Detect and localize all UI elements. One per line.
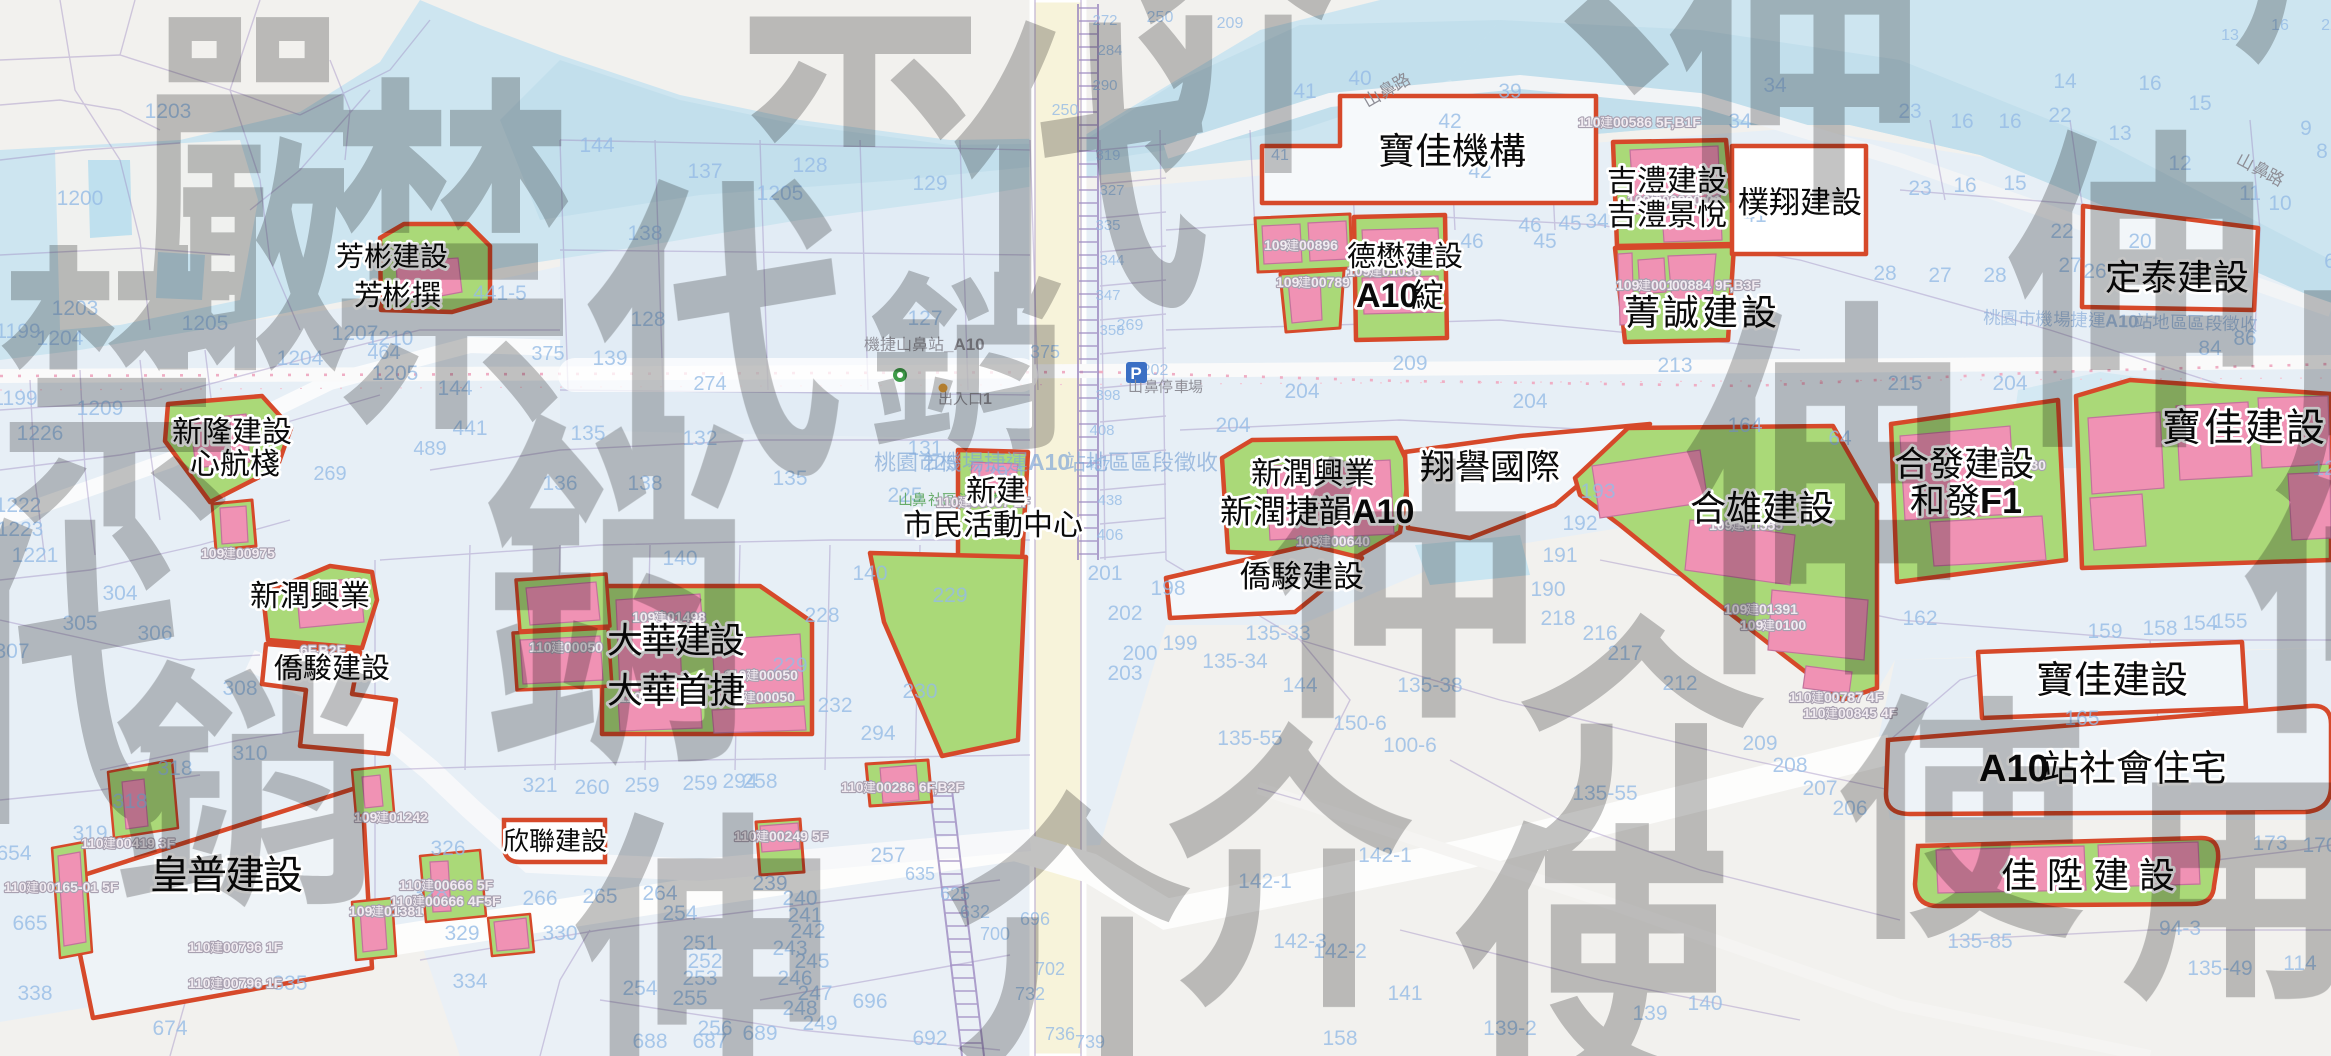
svg-text:00165-01 5F: 00165-01 5F [39, 879, 119, 895]
svg-text:F1: F1 [1980, 480, 2022, 521]
svg-text:150-6: 150-6 [1333, 712, 1387, 735]
svg-text:489: 489 [413, 438, 446, 460]
svg-text:406: 406 [1097, 527, 1124, 544]
svg-text:199: 199 [1162, 632, 1197, 655]
svg-text:230: 230 [902, 680, 937, 703]
svg-text:687: 687 [692, 1030, 727, 1053]
svg-text:00249 5F: 00249 5F [769, 828, 829, 844]
svg-text:665: 665 [12, 912, 47, 935]
svg-text:204: 204 [1992, 372, 2027, 395]
svg-text:110: 110 [188, 939, 211, 955]
svg-text:155: 155 [2212, 610, 2247, 633]
svg-text:16: 16 [1953, 174, 1976, 197]
svg-text:00789: 00789 [1311, 274, 1350, 290]
svg-text:358: 358 [1099, 322, 1124, 339]
svg-text:1199: 1199 [0, 387, 38, 410]
svg-text:00796 1F: 00796 1F [223, 939, 283, 955]
svg-text:137: 137 [687, 160, 722, 183]
svg-text:326: 326 [430, 837, 465, 860]
svg-text:257: 257 [870, 844, 905, 867]
svg-text:274: 274 [693, 373, 726, 395]
svg-text:00666 4F5F: 00666 4F5F [425, 893, 501, 909]
svg-text:260: 260 [574, 776, 609, 799]
svg-text:109: 109 [349, 903, 373, 919]
svg-text:203: 203 [1107, 662, 1142, 685]
svg-text:213: 213 [1657, 354, 1692, 377]
svg-text:654: 654 [0, 842, 32, 865]
svg-text:269: 269 [313, 463, 346, 485]
svg-text:438: 438 [1097, 492, 1122, 509]
svg-text:266: 266 [522, 887, 557, 910]
svg-text:00586 5F,B1F: 00586 5F,B1F [1613, 114, 1701, 130]
svg-text:250: 250 [1052, 102, 1079, 119]
svg-text:162: 162 [1902, 607, 1937, 630]
svg-text:294: 294 [860, 722, 895, 745]
svg-text:110: 110 [1789, 689, 1812, 705]
svg-text:109: 109 [201, 545, 225, 561]
svg-text:28: 28 [1983, 264, 2006, 287]
svg-text:110: 110 [4, 879, 27, 895]
svg-text:198: 198 [1150, 577, 1185, 600]
svg-text:259: 259 [682, 772, 717, 795]
svg-text:201: 201 [1087, 562, 1122, 585]
svg-text:00975: 00975 [236, 545, 275, 561]
svg-text:202: 202 [1107, 602, 1142, 625]
svg-text:140: 140 [852, 562, 887, 585]
svg-text:209: 209 [1742, 732, 1777, 755]
svg-text:139: 139 [592, 347, 627, 370]
svg-text:00884 9F,B3F: 00884 9F,B3F [1672, 277, 1760, 293]
svg-text:01391: 01391 [1759, 601, 1798, 617]
svg-text:39: 39 [1498, 80, 1521, 103]
svg-text:204: 204 [1215, 414, 1250, 437]
svg-text:702: 702 [1035, 959, 1065, 979]
svg-text:739: 739 [1075, 1032, 1105, 1052]
svg-text:10: 10 [2268, 192, 2291, 215]
svg-text:01381: 01381 [384, 903, 423, 919]
svg-text:41: 41 [1293, 80, 1316, 103]
svg-text:700: 700 [980, 924, 1010, 944]
svg-text:158: 158 [2142, 617, 2177, 640]
svg-text:00787 4F: 00787 4F [1824, 689, 1884, 705]
svg-text:110: 110 [1578, 114, 1601, 130]
svg-text:674: 674 [152, 1017, 187, 1040]
svg-text:109: 109 [1276, 274, 1300, 290]
svg-text:375: 375 [531, 343, 564, 365]
svg-text:347: 347 [1095, 287, 1120, 304]
svg-text:204: 204 [1284, 380, 1319, 403]
svg-text:192: 192 [1562, 512, 1597, 535]
svg-text:408: 408 [1089, 422, 1114, 439]
svg-text:692: 692 [912, 1027, 947, 1050]
svg-text:6: 6 [2324, 250, 2331, 273]
svg-text:15: 15 [2003, 172, 2026, 195]
svg-text:193: 193 [1580, 480, 1615, 503]
svg-text:128: 128 [792, 154, 827, 177]
svg-text:110: 110 [81, 835, 104, 851]
svg-text:9: 9 [2300, 117, 2312, 140]
svg-text:23: 23 [1908, 177, 1931, 200]
svg-text:100-6: 100-6 [1383, 734, 1437, 757]
svg-text:13: 13 [2221, 27, 2239, 44]
svg-text:635: 635 [905, 864, 935, 884]
svg-text:190: 190 [1530, 578, 1565, 601]
svg-text:304: 304 [102, 582, 137, 605]
svg-text:0100: 0100 [1775, 617, 1806, 633]
svg-text:A10: A10 [1028, 449, 1070, 475]
svg-text:34: 34 [1585, 210, 1609, 233]
svg-text:110: 110 [936, 494, 959, 510]
svg-text:158: 158 [1322, 1027, 1357, 1050]
svg-text:259: 259 [624, 774, 659, 797]
svg-text:110: 110 [399, 877, 422, 893]
svg-text:696: 696 [852, 990, 887, 1013]
svg-text:45: 45 [1533, 230, 1556, 253]
svg-text:13: 13 [2108, 122, 2131, 145]
svg-text:129: 129 [912, 172, 947, 195]
svg-text:16: 16 [2138, 72, 2161, 95]
svg-text:338: 338 [17, 982, 52, 1005]
svg-text:34: 34 [1728, 110, 1752, 133]
svg-text:228: 228 [804, 604, 839, 627]
svg-text:1200: 1200 [57, 187, 104, 210]
svg-text:135-85: 135-85 [1947, 930, 2012, 953]
svg-text:142-3: 142-3 [1273, 930, 1327, 953]
svg-text:8: 8 [2316, 140, 2328, 163]
svg-text:16: 16 [1998, 110, 2021, 133]
svg-text:14: 14 [2053, 70, 2077, 93]
svg-text:154: 154 [2182, 612, 2217, 635]
svg-text:321: 321 [522, 774, 557, 797]
svg-text:42: 42 [1438, 110, 1461, 133]
svg-text:28: 28 [1873, 262, 1896, 285]
svg-text:135-33: 135-33 [1245, 622, 1310, 645]
svg-text:141: 141 [1387, 982, 1422, 1005]
svg-text:16: 16 [1950, 110, 1973, 133]
svg-text:209: 209 [1392, 352, 1427, 375]
svg-text:144: 144 [579, 134, 614, 157]
svg-text:00896: 00896 [1299, 237, 1338, 253]
svg-text:218: 218 [1540, 607, 1575, 630]
svg-text:736: 736 [1045, 1024, 1075, 1044]
svg-text:A10: A10 [1356, 277, 1418, 315]
svg-text:110: 110 [188, 975, 211, 991]
svg-text:00286 6F,B2F: 00286 6F,B2F [876, 779, 964, 795]
svg-text:00050: 00050 [756, 689, 795, 705]
svg-text:329: 329 [444, 922, 479, 945]
svg-text:191: 191 [1542, 544, 1577, 567]
svg-text:334: 334 [452, 970, 487, 993]
svg-text:110: 110 [1803, 705, 1826, 721]
svg-text:330: 330 [542, 922, 577, 945]
svg-text:22: 22 [2321, 17, 2331, 34]
svg-text:109: 109 [1264, 237, 1288, 253]
svg-text:00666 5F: 00666 5F [434, 877, 494, 893]
svg-text:110: 110 [841, 779, 864, 795]
svg-text:258: 258 [742, 770, 777, 793]
svg-text:45: 45 [1558, 212, 1581, 235]
svg-text:208: 208 [1772, 754, 1807, 777]
svg-text:15: 15 [2188, 92, 2211, 115]
svg-text:40: 40 [1348, 67, 1371, 90]
svg-text:00796 1F: 00796 1F [223, 975, 283, 991]
svg-text:135-34: 135-34 [1202, 650, 1268, 673]
svg-text:232: 232 [817, 694, 852, 717]
svg-text:209: 209 [1217, 15, 1244, 32]
svg-text:01242: 01242 [389, 809, 428, 825]
svg-text:109: 109 [1616, 277, 1640, 293]
svg-text:159: 159 [2087, 620, 2122, 643]
svg-text:00845 4F: 00845 4F [1838, 705, 1898, 721]
svg-text:140: 140 [1687, 992, 1722, 1015]
svg-text:27: 27 [1928, 264, 1951, 287]
svg-text:229: 229 [932, 584, 967, 607]
svg-text:204: 204 [1512, 390, 1547, 413]
svg-text:00050: 00050 [759, 667, 798, 683]
svg-text:398: 398 [1095, 387, 1120, 404]
svg-text:22: 22 [2048, 104, 2071, 127]
